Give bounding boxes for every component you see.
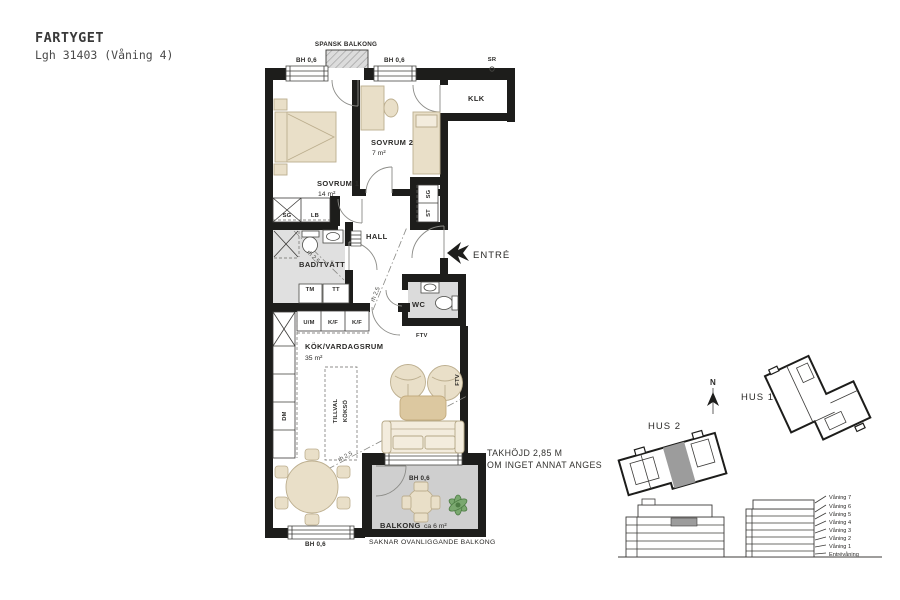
- floor-label: Våning 1: [829, 543, 851, 550]
- entre-label: ENTRÉ: [473, 250, 510, 261]
- bh-label: BH 0,6: [384, 57, 405, 64]
- st-label: ST: [426, 209, 432, 217]
- rh-label: rh 2,5: [370, 286, 382, 303]
- seat-cushion: [425, 436, 455, 449]
- lb-label: LB: [311, 213, 319, 219]
- nightstand: [274, 99, 287, 110]
- hus2-label: HUS 2: [648, 421, 681, 432]
- spansk-balkong-deck: [326, 50, 368, 69]
- wc-toilet: [436, 297, 453, 310]
- kitchen-counters: [273, 311, 369, 460]
- pillow: [416, 115, 437, 127]
- elevation-left-building: [626, 499, 724, 557]
- tm-label: TM: [306, 287, 315, 293]
- balkong-label: BALKONG: [380, 521, 421, 530]
- klk-label: KLK: [468, 94, 485, 103]
- dm-label: DM: [282, 411, 288, 420]
- elevation-right-building: [746, 500, 814, 557]
- sovrum1-area: 14 m²: [318, 191, 336, 198]
- site-plan: N HUS 1 HUS 2: [617, 340, 873, 501]
- takhojd-note-2: OM INGET ANNAT ANGES: [487, 460, 602, 470]
- floor-label: Våning 3: [829, 527, 851, 534]
- north-arrow: N: [707, 378, 719, 414]
- bh-label: BH 0,6: [305, 541, 326, 548]
- floor-label: Våning 4: [829, 519, 851, 526]
- hus2-building: [617, 427, 726, 501]
- sr-label: SR: [488, 57, 497, 63]
- hall-label: HALL: [366, 232, 388, 241]
- balcony-table: [408, 489, 434, 515]
- seat-cushion: [393, 436, 423, 449]
- sovrum1-label: SOVRUM 1: [317, 179, 359, 188]
- kok-area: 35 m²: [305, 355, 323, 362]
- floorplan-drawing: SPANSK BALKONG BH 0,6 BH 0,6 SR KLK SOVR…: [0, 0, 900, 600]
- elevation-floor-labels: Våning 7 Våning 6 Våning 5 Våning 4 Våni…: [815, 494, 859, 558]
- sg-label: SG: [283, 213, 292, 219]
- floor-label: Våning 5: [829, 511, 851, 518]
- floorplan-page: FARTYGET Lgh 31403 (Våning 4): [0, 0, 900, 600]
- floor-label: Våning 7: [829, 494, 851, 501]
- window-kitchen: [288, 526, 354, 539]
- sovrum1-furniture: [274, 99, 336, 175]
- ftv-label: FTV: [416, 333, 428, 339]
- highlighted-floor-unit: [671, 518, 697, 526]
- saknar-note: SAKNAR OVANLIGGANDE BALKONG: [369, 539, 496, 546]
- bh-label: BH 0,6: [409, 475, 430, 482]
- takhojd-note-1: TAKHÖJD 2,85 M: [487, 448, 562, 458]
- kok-label: KÖK/VARDAGSRUM: [305, 342, 383, 351]
- toilet-tank: [302, 231, 319, 237]
- desk-chair: [384, 99, 398, 117]
- window-sovrum1: [286, 66, 328, 81]
- dining-table: [286, 461, 338, 513]
- sovrum2-area: 7 m²: [372, 150, 386, 157]
- tillval-label: TILLVAL: [333, 399, 339, 424]
- bad-label: BAD/TVÄTT: [299, 260, 345, 269]
- um-label: U/M: [303, 320, 314, 326]
- entre-arrow-icon: [447, 242, 469, 264]
- wc-label: WC: [412, 300, 425, 309]
- sg-label: SG: [426, 189, 432, 198]
- optional-kitchen-island: [325, 367, 357, 460]
- sovrum2-furniture: [361, 86, 440, 174]
- window-balcony: [385, 452, 462, 465]
- kf-label: K/F: [352, 320, 362, 326]
- balkong-area: ca 6 m²: [424, 523, 447, 530]
- nightstand: [274, 164, 287, 175]
- desk: [361, 86, 384, 130]
- sovrum2-label: SOVRUM 2: [371, 138, 413, 147]
- kf-label: K/F: [328, 320, 338, 326]
- double-bed: [275, 112, 336, 162]
- building-elevation: Våning 7 Våning 6 Våning 5 Våning 4 Våni…: [618, 494, 882, 558]
- apartment-plan: SPANSK BALKONG BH 0,6 BH 0,6 SR KLK SOVR…: [265, 41, 602, 548]
- tt-label: TT: [332, 287, 340, 293]
- tillval-label: KÖKSÖ: [342, 400, 349, 423]
- hus1-building: [763, 340, 873, 457]
- coffee-table: [400, 396, 446, 420]
- spansk-balkong-label: SPANSK BALKONG: [315, 41, 377, 48]
- window-sovrum2: [374, 66, 416, 81]
- north-label: N: [710, 378, 716, 387]
- rh-label: rh 2,5: [337, 451, 354, 464]
- floor-label: Våning 2: [829, 535, 851, 542]
- hus1-label: HUS 1: [741, 392, 774, 403]
- bh-label: BH 0,6: [296, 57, 317, 64]
- floor-label: Entrévåning: [829, 551, 859, 558]
- ftv-label: FTV: [455, 374, 461, 386]
- floor-label: Våning 6: [829, 503, 851, 510]
